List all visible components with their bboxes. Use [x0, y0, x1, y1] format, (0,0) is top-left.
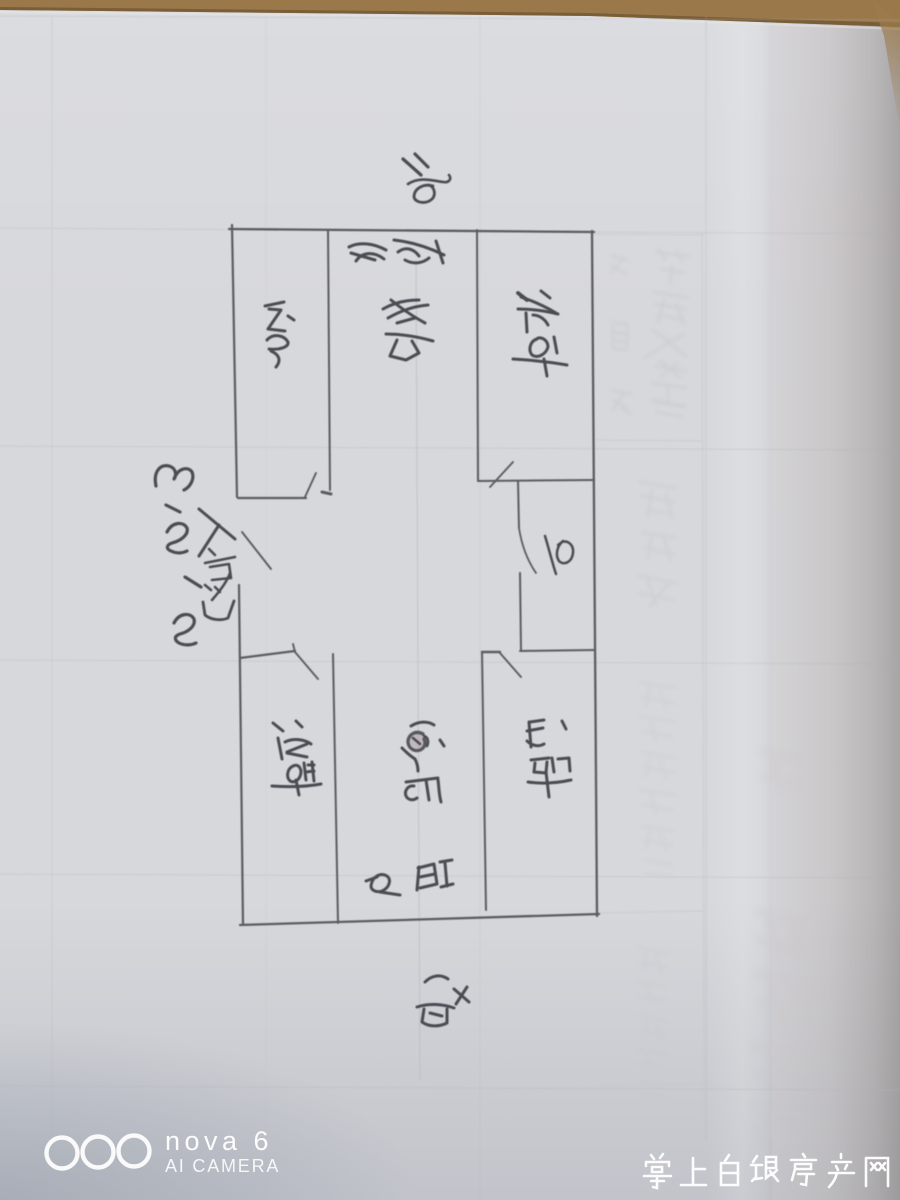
svg-text:nova 6: nova 6 [165, 1126, 273, 1156]
svg-text:AI CAMERA: AI CAMERA [165, 1156, 280, 1176]
